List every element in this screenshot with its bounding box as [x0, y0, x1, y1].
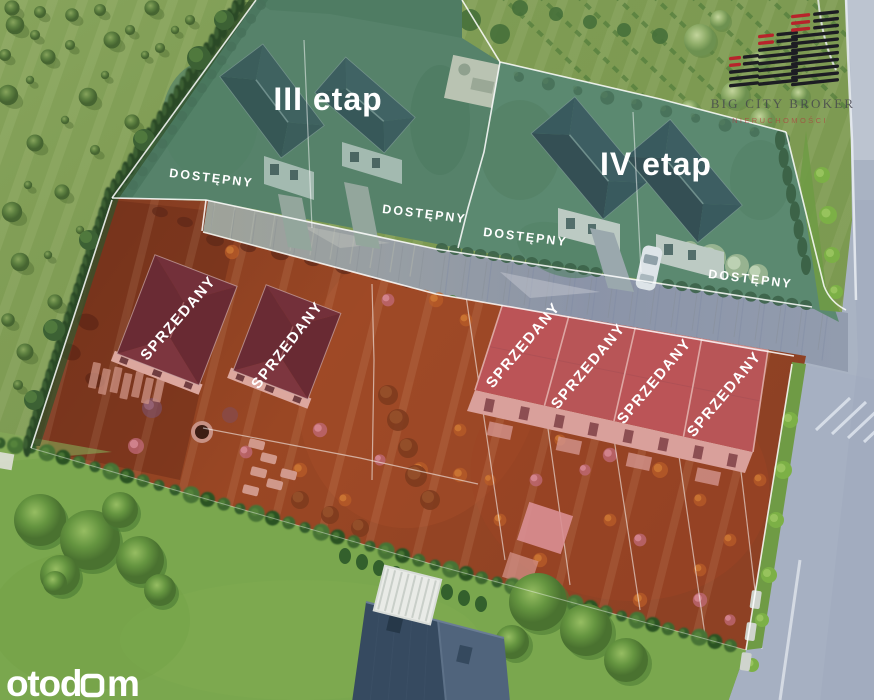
svg-text:NIERUCHOMOŚCI: NIERUCHOMOŚCI: [732, 116, 828, 125]
svg-text:BIG CITY BROKER: BIG CITY BROKER: [711, 96, 855, 111]
svg-text:m: m: [107, 663, 140, 700]
svg-text:IV etap: IV etap: [600, 146, 712, 182]
svg-text:otod: otod: [6, 663, 81, 700]
svg-text:III etap: III etap: [273, 81, 382, 117]
